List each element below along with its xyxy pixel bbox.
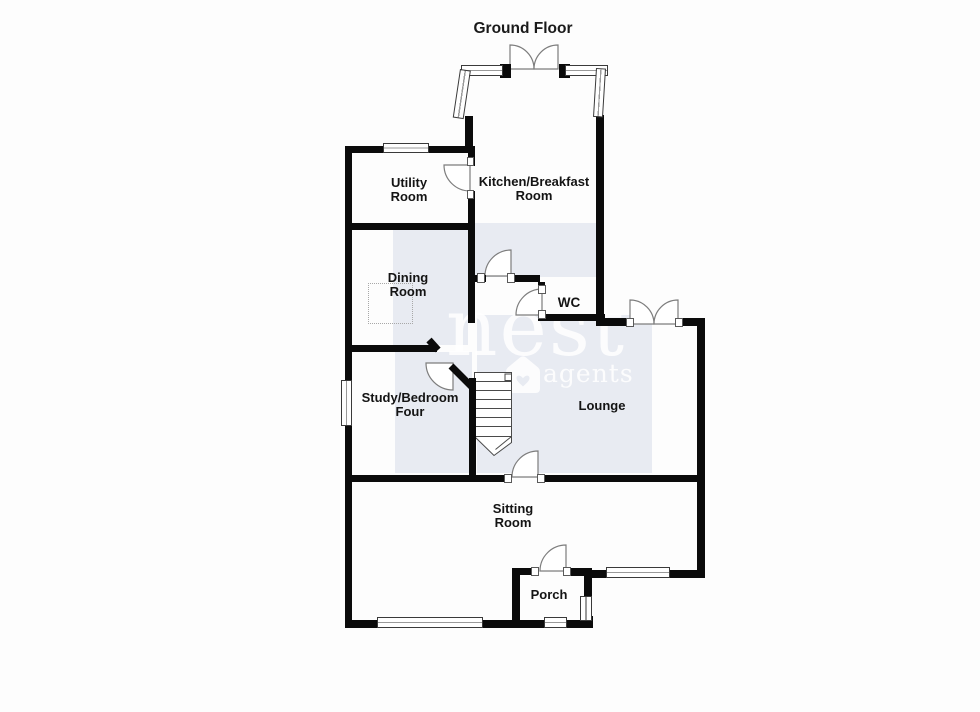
window-lounge-bottom	[606, 567, 670, 578]
door-hinge	[537, 474, 545, 483]
room-label-wc: WC	[539, 296, 599, 311]
window-sitting-room	[377, 617, 483, 628]
door-hinge	[538, 310, 546, 319]
wall	[345, 223, 475, 230]
door-hinge	[563, 567, 571, 576]
door-arc-kitchen-french-left	[510, 45, 534, 69]
door-arc-kitchen-french-right	[534, 45, 558, 69]
wall	[538, 475, 705, 482]
door-arc-study	[426, 363, 453, 390]
wall	[596, 115, 604, 322]
doors-and-stairs-layer	[0, 0, 980, 712]
room-label-dining: Dining Room	[348, 271, 468, 300]
door-hinge	[538, 285, 546, 294]
page-title: Ground Floor	[423, 20, 623, 38]
door-arc-sitting	[512, 451, 538, 477]
door-hinge	[675, 318, 683, 327]
wall	[465, 116, 473, 152]
door-hinge	[507, 273, 515, 283]
floorplan-canvas: nest agents	[0, 0, 980, 712]
room-label-porch: Porch	[509, 588, 589, 602]
room-label-study: Study/Bedroom Four	[330, 391, 490, 420]
room-label-lounge: Lounge	[542, 399, 662, 413]
door-hinge	[531, 567, 539, 576]
room-label-kitchen: Kitchen/Breakfast Room	[454, 175, 614, 204]
room-label-utility: Utility Room	[349, 176, 469, 205]
window-porch-front	[544, 617, 567, 628]
wall	[345, 345, 437, 352]
door-hinge	[477, 273, 485, 283]
door-hinge	[626, 318, 634, 327]
door-hinge	[504, 474, 512, 483]
wall	[538, 314, 605, 321]
door-hinge	[467, 157, 474, 166]
wall	[697, 318, 705, 578]
room-label-sitting: Sitting Room	[453, 502, 573, 531]
window-utility	[383, 143, 429, 153]
wall	[345, 475, 512, 482]
